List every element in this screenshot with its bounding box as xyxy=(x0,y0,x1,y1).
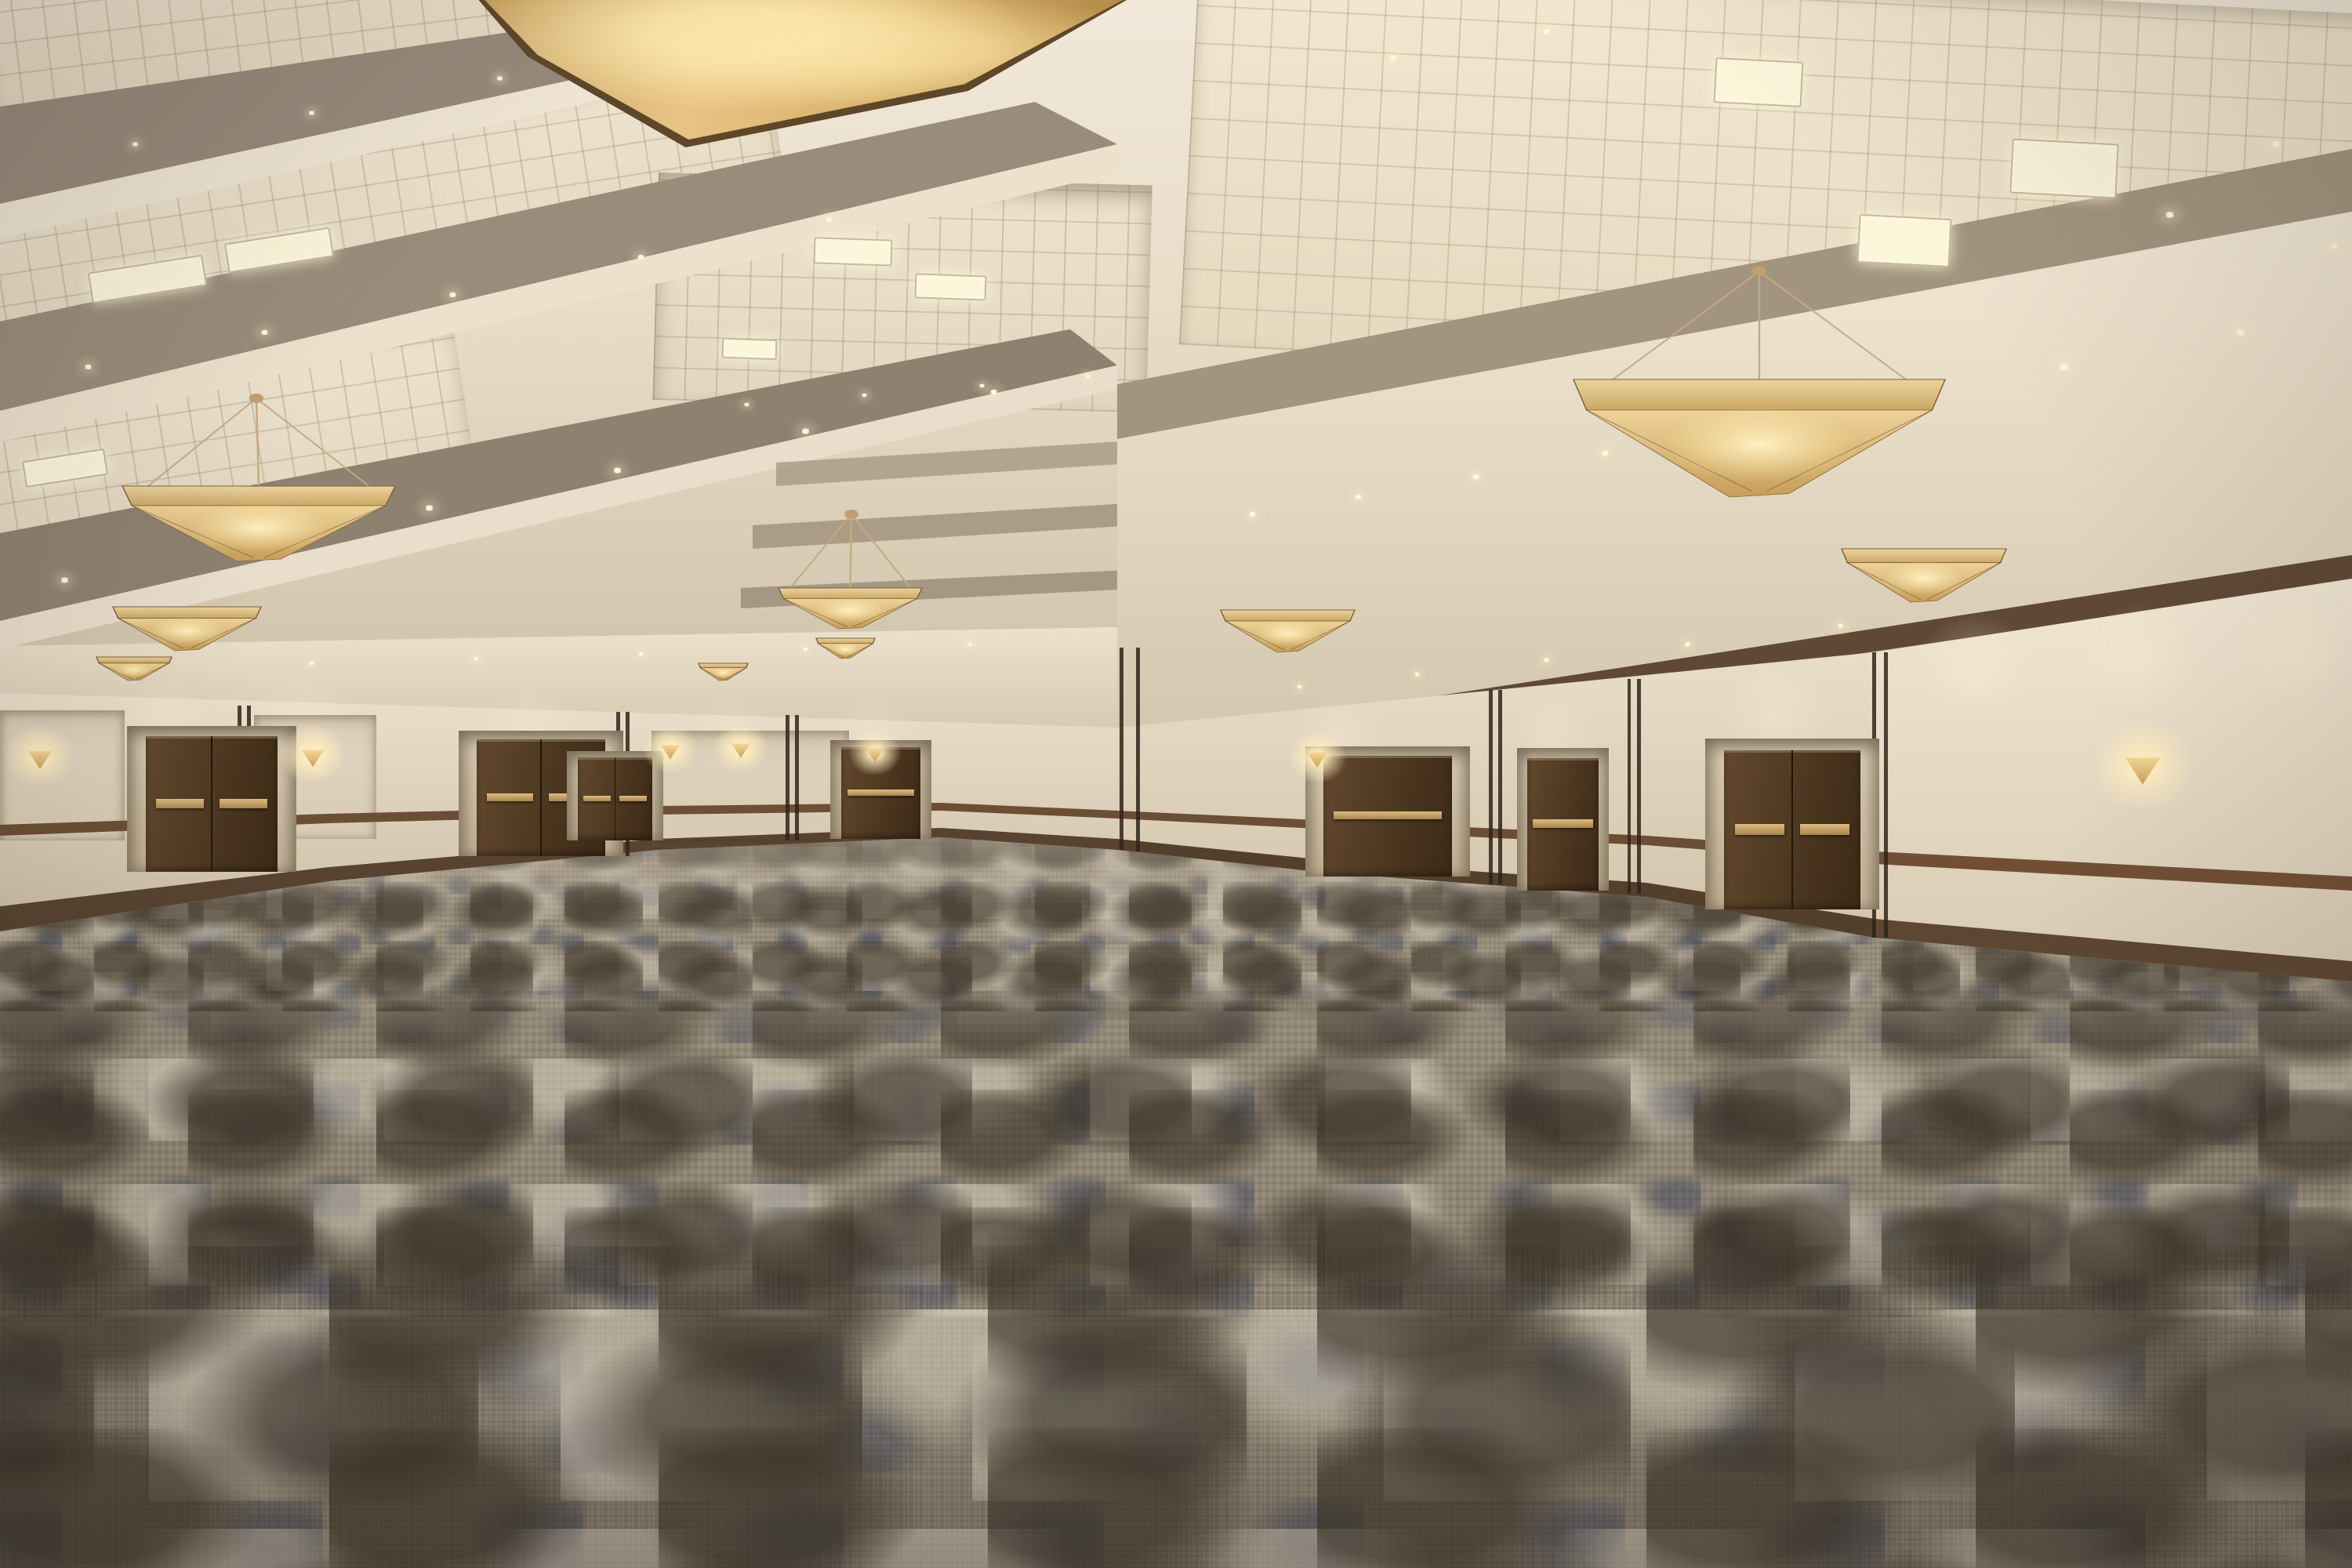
chandelier xyxy=(148,617,225,645)
chandelier xyxy=(786,514,851,593)
chandelier xyxy=(122,486,395,506)
chandelier xyxy=(1759,271,1926,395)
chandelier xyxy=(113,607,261,619)
chandeliers-layer xyxy=(0,0,2352,1568)
chandelier xyxy=(813,597,887,623)
chandelier xyxy=(256,398,259,486)
chandelier xyxy=(188,503,330,551)
chandelier xyxy=(851,514,852,588)
chandelier xyxy=(699,663,748,668)
chandelier xyxy=(1253,619,1323,647)
chandelier xyxy=(851,514,915,593)
chandelier xyxy=(1663,407,1856,482)
chandelier xyxy=(136,398,256,495)
chandelier xyxy=(96,657,172,663)
chandelier xyxy=(249,394,263,403)
chandelier xyxy=(1881,561,1966,596)
chandelier xyxy=(256,398,382,495)
ballroom-photo xyxy=(0,0,2352,1568)
chandelier xyxy=(779,588,922,599)
chandelier xyxy=(830,643,861,656)
chandelier xyxy=(1573,379,1945,410)
chandelier xyxy=(1592,271,1759,395)
chandelier xyxy=(844,510,858,519)
chandelier xyxy=(1842,549,2006,563)
chandelier xyxy=(114,662,154,677)
chandelier xyxy=(816,638,875,644)
chandelier xyxy=(710,667,736,678)
chandelier xyxy=(1221,610,1355,621)
chandelier xyxy=(1752,267,1766,276)
